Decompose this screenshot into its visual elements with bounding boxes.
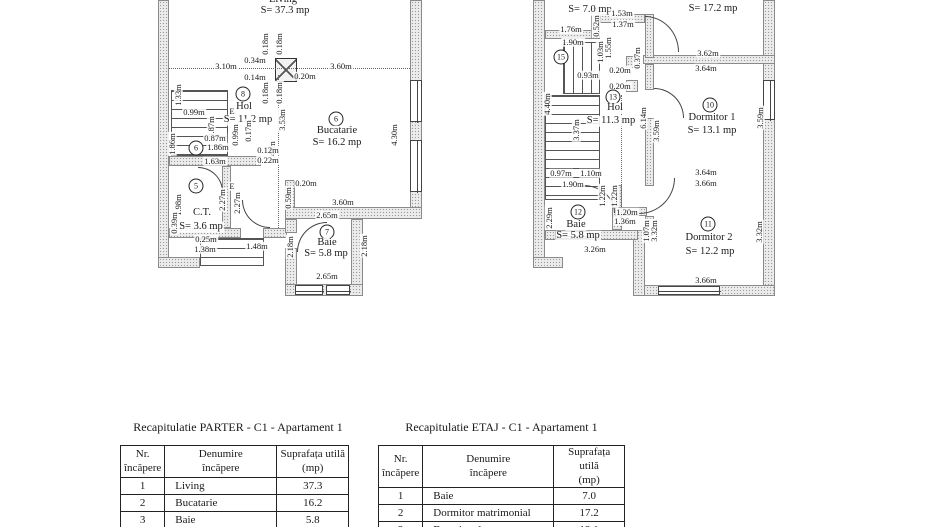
table-row: 3Baie5.8 [121, 512, 349, 527]
window [658, 286, 720, 295]
recap-parter-title: Recapitulatie PARTER - C1 - Apartament 1 [120, 420, 356, 435]
room-area-label: S= 17.2 mp [688, 4, 739, 15]
cell: 1 [121, 478, 165, 495]
room-number: 10 [703, 98, 718, 113]
recap-parter-table: Nr.încăpereDenumireîncăpereSuprafața uti… [120, 445, 349, 527]
dimension-label: 0.97m [549, 169, 573, 178]
cell: Baie [423, 488, 554, 505]
dimension-label: 3.66m [694, 179, 718, 188]
dimension-label: 0.99m [231, 123, 240, 147]
recap-table-etaj: Recapitulatie ETAJ - C1 - Apartament 1 N… [378, 420, 625, 527]
cell: 5.8 [277, 512, 349, 527]
dimension-label: 1.55m [604, 36, 613, 60]
header-cell: Suprafața utilă(mp) [554, 446, 625, 488]
window-mullion [417, 141, 418, 193]
cell: Baie [165, 512, 277, 527]
cell: Bucatarie [165, 495, 277, 512]
recap-table-parter: Recapitulatie PARTER - C1 - Apartament 1… [120, 420, 356, 527]
header-cell: Denumireîncăpere [423, 446, 554, 488]
table-header-row: Nr.încăpereDenumireîncăpereSuprafața uti… [121, 446, 349, 478]
window [295, 285, 323, 295]
cell: 16.2 [277, 495, 349, 512]
wall [533, 257, 563, 268]
room-area-label: S= 3.6 mp [178, 222, 224, 233]
table-row: 1Baie7.0 [379, 488, 625, 505]
dimension-label: 2.27m [233, 191, 242, 215]
cell: 37.3 [277, 478, 349, 495]
dimension-label: 3.60m [329, 62, 353, 71]
dimension-label: 1.63m [203, 157, 227, 166]
dimension-label: 3.37m [572, 118, 581, 142]
cell: 1 [379, 488, 423, 505]
room-number: 15 [554, 50, 569, 65]
room-label: Hol [606, 103, 624, 114]
dimension-label: 1.33m [174, 83, 183, 107]
cell: 2 [121, 495, 165, 512]
window [410, 140, 422, 192]
dimension-label: 0.25m [194, 235, 218, 244]
dimension-label: 3.60m [331, 198, 355, 207]
dimension-label: 1.38m [193, 245, 217, 254]
dimension-label: 3.26m [583, 245, 607, 254]
dimension-label: 1.86m [168, 132, 177, 156]
room-area-label: S= 37.3 mp [260, 6, 311, 17]
room-area-label: S= 5.8 mp [555, 231, 601, 242]
wall [263, 228, 287, 238]
dimension-label: 1.76m [559, 25, 583, 34]
dimension-guide-line [169, 68, 410, 69]
wall [285, 219, 297, 233]
dimension-label: 3.59m [756, 106, 765, 130]
table-row: 1Living37.3 [121, 478, 349, 495]
dimension-label: E [228, 182, 235, 191]
dimension-label: 3.32m [650, 219, 659, 243]
window-mullion [770, 81, 771, 121]
dimension-label: 3.62m [696, 49, 720, 58]
table-row: 2Dormitor matrimonial17.2 [379, 505, 625, 522]
dimension-label: 0.18m [261, 81, 270, 105]
cell: Dormitor 1 [423, 522, 554, 527]
room-area-label: S= 7.0 mp [567, 5, 613, 16]
recap-etaj-table: Nr.încăpereDenumireîncăpereSuprafața uti… [378, 445, 625, 527]
window [763, 80, 775, 120]
dimension-label: 3.32m [755, 220, 764, 244]
room-label: Baie [565, 220, 586, 231]
dimension-label: 3.66m [694, 276, 718, 285]
floor-plan-etaj: S= 7.0 mp1.53m1.37mS= 17.2 mp1.76m0.52m1… [533, 0, 778, 300]
cell: 3 [379, 522, 423, 527]
document-page: { "plans": { "parter": { "labels": [ {"t… [0, 0, 938, 527]
dimension-label: 0.18m [261, 32, 270, 56]
cell: 17.2 [554, 505, 625, 522]
cell: Living [165, 478, 277, 495]
room-area-label: S= 5.8 mp [303, 249, 349, 260]
window-mullion [296, 291, 324, 292]
dimension-label: 0.34m [243, 56, 267, 65]
room-label: C.T. [192, 208, 212, 219]
dimension-label: 6.14m [639, 106, 648, 130]
room-number: 11 [701, 217, 716, 232]
dimension-label: 0.18m [275, 32, 284, 56]
room-area-label: S= 12.2 mp [685, 247, 736, 258]
dimension-label: 0.14m [243, 73, 267, 82]
dimension-label: 0.20m [293, 72, 317, 81]
window-mullion [327, 291, 351, 292]
dimension-label: 1.22m [610, 184, 619, 208]
dimension-label: 3.53m [278, 108, 287, 132]
dimension-label: 4.40m [543, 92, 552, 116]
door-arc [654, 88, 684, 118]
dimension-label: 1.10m [579, 169, 603, 178]
dimension-label: 1.36m [613, 217, 637, 226]
dimension-label: 0.52m [592, 14, 601, 38]
cell: 3 [121, 512, 165, 527]
dimension-label: 4.30m [390, 123, 399, 147]
dimension-label: 0.37m [633, 46, 642, 70]
room-number: 5 [189, 179, 204, 194]
cell: 13.1 [554, 522, 625, 527]
dimension-label: 0.93m [576, 71, 600, 80]
room-label: Hol [235, 102, 253, 113]
room-number: 8 [236, 87, 251, 102]
wall [645, 64, 654, 90]
dimension-label: 1.48m [245, 242, 269, 251]
door-arc [645, 16, 679, 52]
dimension-label: 0.18m [275, 81, 284, 105]
dimension-label: 1.22m [598, 184, 607, 208]
room-label: Dormitor 2 [685, 233, 734, 244]
dimension-label: 2.29m [545, 206, 554, 230]
wall [763, 0, 775, 296]
door-arc [242, 200, 270, 228]
room-area-label: S= 16.2 mp [312, 138, 363, 149]
room-number: 6 [189, 141, 204, 156]
window-mullion [417, 81, 418, 123]
dimension-label: 0.99m [182, 108, 206, 117]
window [326, 285, 350, 295]
table-row: 2Bucatarie16.2 [121, 495, 349, 512]
dimension-label: 2.27m [218, 188, 227, 212]
wall [158, 257, 200, 268]
cell: Dormitor matrimonial [423, 505, 554, 522]
cell: 2 [379, 505, 423, 522]
dimension-label: 2.65m [315, 211, 339, 220]
dimension-label: 0.39m [170, 211, 179, 235]
dimension-label: 0.20m [294, 179, 318, 188]
dimension-label: 1.53m [610, 9, 634, 18]
window [410, 80, 422, 122]
dimension-label: 3.10m [214, 62, 238, 71]
dimension-label: 1.90m [561, 38, 585, 47]
door-arc [639, 178, 675, 214]
dimension-label: 0.12m [256, 146, 280, 155]
header-cell: Nr.încăpere [121, 446, 165, 478]
floor-plan-parter: LivingS= 37.3 mp3.10m0.34m3.60m0.14m0.20… [158, 0, 426, 300]
dimension-label: 1.90m [561, 180, 585, 189]
table-row: 3Dormitor 113.1 [379, 522, 625, 527]
cell: 7.0 [554, 488, 625, 505]
room-label: Bucatarie [316, 126, 358, 137]
room-number: 12 [571, 205, 586, 220]
dimension-label: 0.20m [608, 66, 632, 75]
room-area-label: S= 11.3 mp [586, 116, 636, 127]
header-cell: Denumireîncăpere [165, 446, 277, 478]
dimension-label: 0.17m [244, 119, 253, 143]
dimension-label: 1.37m [611, 20, 635, 29]
dimension-label: 1.86m [206, 143, 230, 152]
header-cell: Suprafața utilă(mp) [277, 446, 349, 478]
dimension-label: 2.18m [360, 234, 369, 258]
dimension-label: 3.59m [652, 119, 661, 143]
room-label: Dormitor 1 [688, 113, 737, 124]
window-mullion [659, 291, 721, 292]
dimension-label: 2.65m [315, 272, 339, 281]
dimension-label: E [228, 107, 235, 116]
header-cell: Nr.încăpere [379, 446, 423, 488]
dimension-label: 3.64m [694, 168, 718, 177]
room-area-label: S= 13.1 mp [687, 126, 738, 137]
table-header-row: Nr.încăpereDenumireîncăpereSuprafața uti… [379, 446, 625, 488]
dimension-label: 2.18m [286, 235, 295, 259]
dimension-label: 3.64m [694, 64, 718, 73]
wall [285, 207, 422, 219]
room-label: Baie [316, 238, 337, 249]
dimension-label: 0.59m [284, 186, 293, 210]
recap-etaj-title: Recapitulatie ETAJ - C1 - Apartament 1 [378, 420, 625, 435]
dimension-label: 0.22m [256, 156, 280, 165]
